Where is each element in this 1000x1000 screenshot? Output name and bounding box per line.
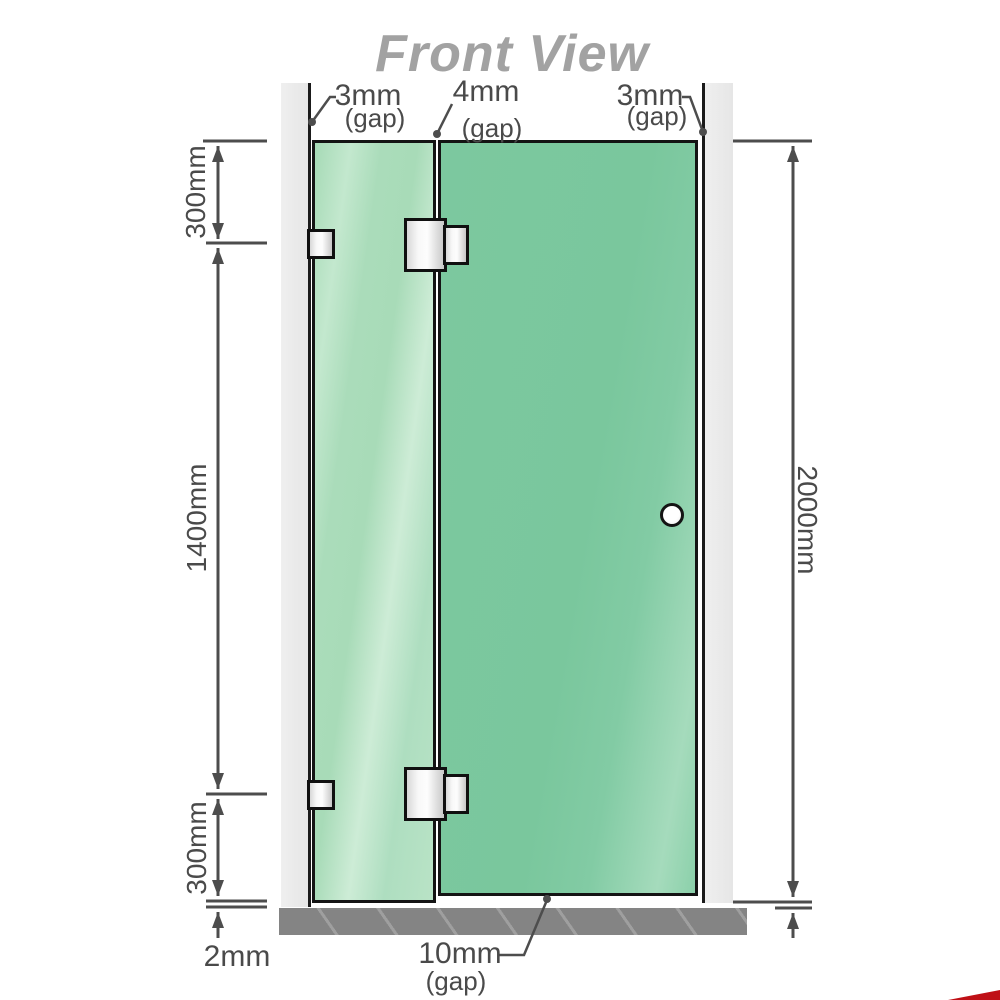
gap-3mm-right-sublabel: (gap) xyxy=(627,103,688,129)
leader-lines xyxy=(308,97,707,955)
gap-10mm-sublabel: (gap) xyxy=(426,968,487,994)
gap-10mm-label: 10mm xyxy=(418,939,501,969)
dim-300mm-top-label: 300mm xyxy=(182,145,210,238)
gap-3mm-left-sublabel: (gap) xyxy=(345,105,406,131)
diagram-canvas: Front View xyxy=(0,0,1000,1000)
dim-2mm-label: 2mm xyxy=(204,942,271,972)
gap-4mm-label: 4mm xyxy=(453,77,520,107)
dimension-left-column xyxy=(203,141,267,938)
dimension-lines xyxy=(0,0,1000,1000)
dim-2000mm-label: 2000mm xyxy=(793,466,821,575)
dim-300mm-bottom-label: 300mm xyxy=(183,801,211,894)
gap-4mm-sublabel: (gap) xyxy=(462,115,523,141)
dim-1400mm-label: 1400mm xyxy=(183,464,211,573)
